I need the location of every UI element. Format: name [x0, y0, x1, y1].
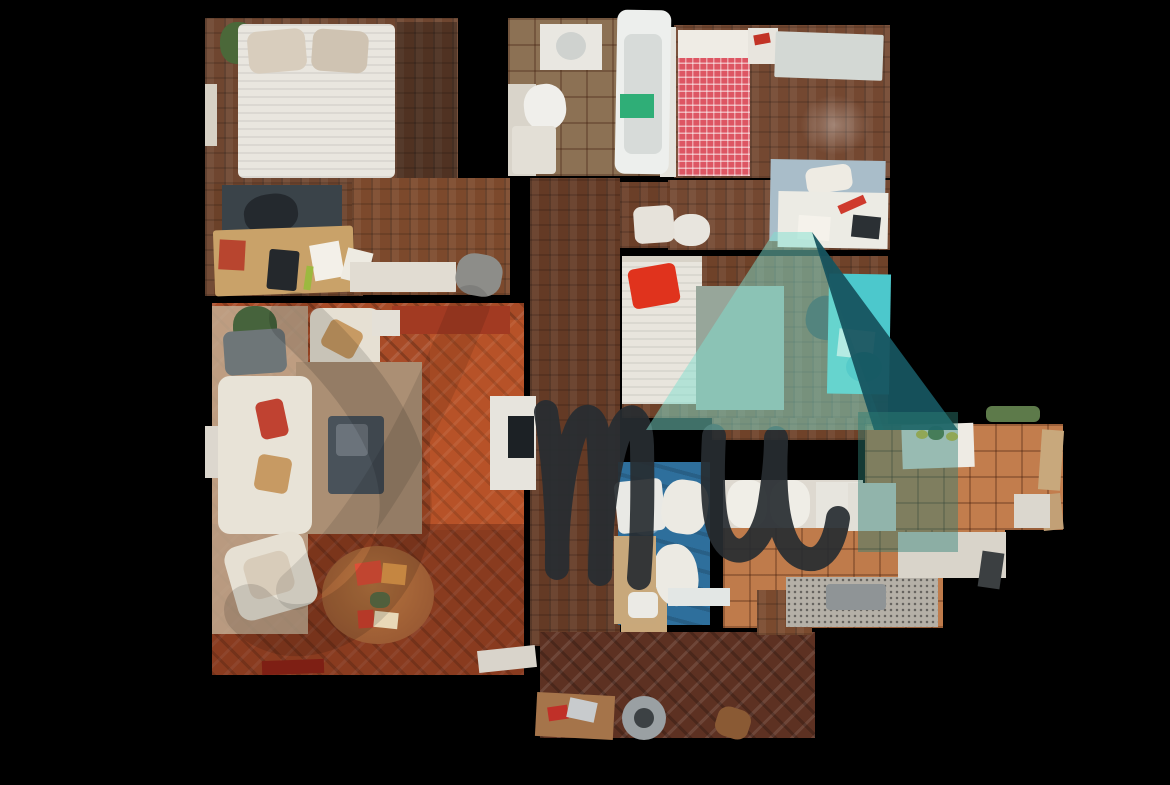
- floorplan-image: [0, 0, 1170, 785]
- tv-screen: [508, 416, 534, 458]
- keyboard-master: [266, 249, 299, 291]
- papers-amber-table: [381, 563, 407, 585]
- chair-white-hall: [672, 214, 710, 246]
- office-chair-hub: [634, 708, 654, 728]
- tray-coffee-table: [336, 424, 368, 456]
- ledge-plants-dining: [986, 406, 1040, 422]
- shelf-white-living: [372, 310, 400, 336]
- chair-teal: [846, 352, 882, 382]
- cabinet-dining-right: [1014, 494, 1050, 528]
- shower-tray-bathroom1: [512, 126, 556, 174]
- living-wall-bottom: [477, 645, 537, 673]
- kitchen-counter-white: [848, 483, 896, 531]
- chair-dining-1: [1038, 429, 1064, 490]
- shelf-left: [205, 84, 217, 146]
- floor-light-bloom: [800, 95, 870, 155]
- laundry-basket: [633, 205, 675, 245]
- living-wall-left: [205, 426, 218, 478]
- sink-basin-bathroom1: [556, 32, 586, 60]
- console-red-living: [392, 306, 510, 334]
- bedroom3-floor-strip: [712, 418, 888, 440]
- kitchen-sink: [826, 584, 886, 610]
- plant-dining-table: [928, 426, 944, 440]
- wardrobe: [774, 31, 884, 81]
- laptop-dark-desk: [851, 215, 881, 240]
- bedroom1-floor-shadow: [397, 22, 457, 182]
- paper-master-1: [309, 241, 345, 282]
- bidet-bathroom2: [770, 480, 810, 528]
- plant-round-table: [370, 592, 390, 608]
- armchair-gray-living: [223, 328, 288, 376]
- toilet-bathroom2: [727, 480, 767, 528]
- white-surface-top: [668, 588, 730, 606]
- sideboard-hall: [350, 262, 456, 292]
- rug-maroon-strip: [262, 659, 324, 675]
- pillow-master-left: [246, 28, 307, 75]
- bath-mat-green: [620, 94, 654, 118]
- corridor-floor: [530, 178, 620, 646]
- papers-desk-study: [797, 215, 831, 241]
- rug-green-bedroom3: [696, 286, 784, 410]
- shower-bathroom-blue: [613, 478, 666, 535]
- book-stack: [218, 239, 246, 270]
- pillow-tan-sofa: [253, 453, 293, 494]
- pillow-master-right: [311, 28, 370, 74]
- lemons-dining-1: [916, 430, 928, 439]
- sink-small-top: [628, 592, 658, 618]
- book-red-bottomroom: [547, 705, 569, 722]
- pillow-red-bed3: [627, 262, 681, 310]
- papers-orange-table: [355, 560, 384, 585]
- paper-white-table: [373, 611, 399, 629]
- lemons-dining-2: [946, 432, 958, 441]
- paper-red-table: [357, 609, 374, 628]
- dark-chair-kitchen: [978, 551, 1005, 590]
- bed2-plaid-red: [678, 58, 750, 176]
